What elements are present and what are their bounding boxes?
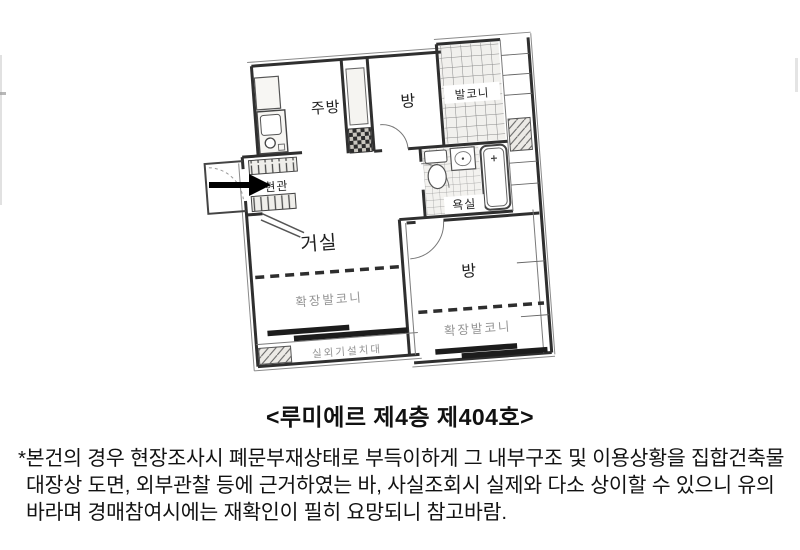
room-right-label: 방 [461,262,478,281]
kitchen-label: 주방 [310,99,341,118]
entrance-arrow-icon [209,171,273,199]
room-top-label: 방 [400,92,417,111]
duct-hatch [508,117,532,151]
unit-title: <루미에르 제4층 제404호> [0,398,800,432]
utility-closet [346,68,368,125]
note-line-1: *본건의 경우 현장조사시 폐문부재상태로 부득이하게 그 내부구조 및 이용상… [8,445,796,472]
floor-plan: 주방 방 발코니 현관 욕실 거실 방 확장발코니 확장발코니 실외기설치대 [191,30,570,402]
balcony-label: 발코니 [454,86,490,102]
utility-mosaic-block [348,127,372,153]
outdoor-unit-box [259,346,292,364]
entrance-step-edge [261,211,305,240]
living-room-label: 거실 [300,231,339,256]
scan-artifact [0,55,2,205]
survey-note: *본건의 경우 현장조사시 폐문부재상태로 부득이하게 그 내부구조 및 이용상… [8,445,796,526]
extended-balcony-left-label: 확장발코니 [295,291,363,310]
extension-dashed-lines [255,256,544,324]
extended-balcony-right-label: 확장발코니 [444,319,512,338]
bathroom-label: 욕실 [452,197,477,213]
note-line-2: 대장상 도면, 외부관찰 등에 근거하였는 바, 사실조회시 실제와 다소 상이… [8,472,796,499]
kitchen-counter [254,76,288,154]
note-line-3: 바라며 경매참여시에는 재확인이 필히 요망되니 참고바람. [8,499,796,526]
scan-artifact [0,92,6,95]
scan-artifact [795,58,798,92]
scanned-appraisal-page: { "title": "<루미에르 제4층 제404호>", "floor_pl… [0,0,800,550]
